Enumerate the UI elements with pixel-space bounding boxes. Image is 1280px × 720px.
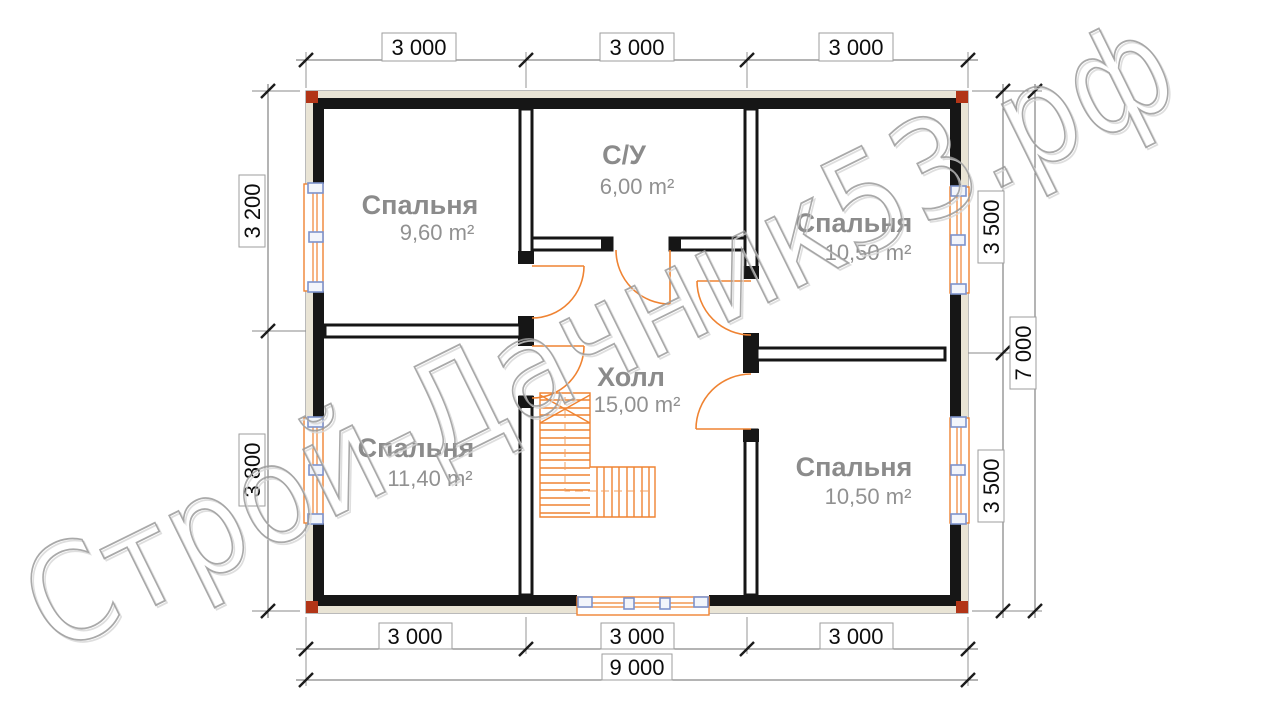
dim-label: 3 500 <box>979 458 1004 513</box>
corner-marker <box>306 91 318 103</box>
dim-label-total-width: 9 000 <box>609 655 664 680</box>
corner-marker <box>956 601 968 613</box>
dim-label: 3 000 <box>609 624 664 649</box>
door-bedroom-bottom-right <box>696 374 751 429</box>
window-bottom-hall <box>577 594 709 615</box>
dim-label-total-height: 7 000 <box>1011 325 1036 380</box>
dim-label: 3 000 <box>387 624 442 649</box>
dimensions-bottom: 3 000 3 000 3 000 9 000 <box>296 617 978 687</box>
room-area-bedroom-top-left: 9,60 m² <box>400 220 475 245</box>
window-right-bottom <box>948 417 972 524</box>
room-label-bathroom: С/У <box>602 140 647 170</box>
corner-marker <box>306 601 318 613</box>
floor-plan-drawing: 3 000 3 000 3 000 3 000 3 000 3 000 9 00… <box>0 0 1280 720</box>
room-label-bedroom-top-left: Спальня <box>362 190 479 220</box>
dimensions-top: 3 000 3 000 3 000 <box>296 33 978 88</box>
window-left-top <box>303 183 327 292</box>
dim-label: 3 000 <box>828 35 883 60</box>
dim-label: 3 000 <box>391 35 446 60</box>
dim-label: 3 200 <box>240 183 265 238</box>
room-area-bathroom: 6,00 m² <box>600 174 675 199</box>
dim-label: 3 000 <box>828 624 883 649</box>
dim-label: 3 000 <box>609 35 664 60</box>
room-area-bedroom-bottom-right: 10,50 m² <box>825 484 912 509</box>
room-label-bedroom-bottom-right: Спальня <box>796 452 913 482</box>
floor-plan-page: 3 000 3 000 3 000 3 000 3 000 3 000 9 00… <box>0 0 1280 720</box>
